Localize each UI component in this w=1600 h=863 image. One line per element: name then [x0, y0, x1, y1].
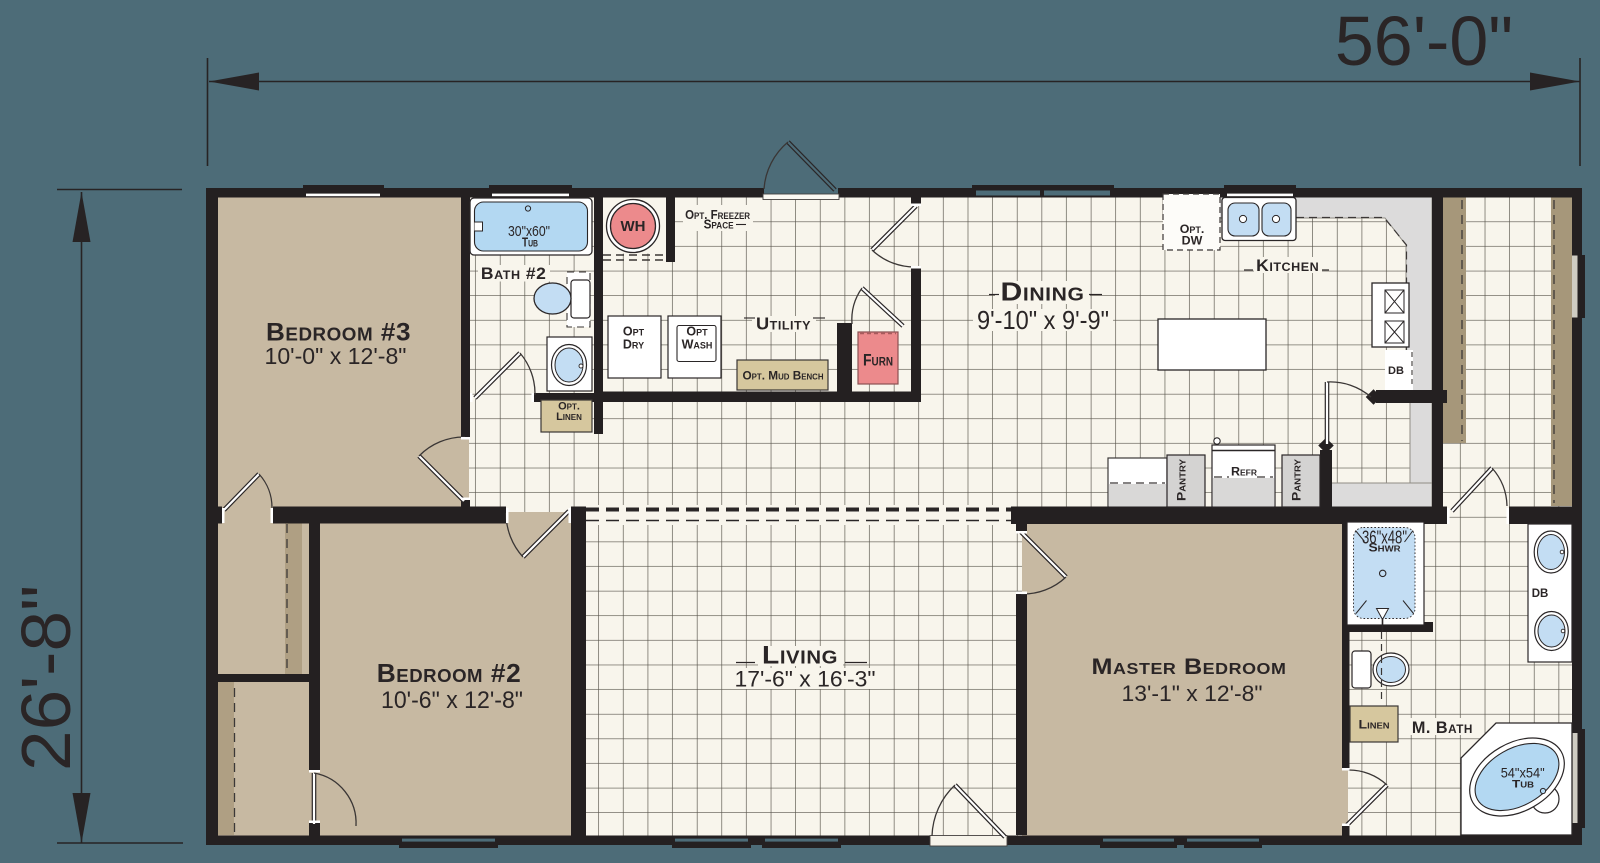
svg-text:10'-6" x 12'-8": 10'-6" x 12'-8" — [381, 687, 523, 714]
svg-text:Bath #2: Bath #2 — [481, 264, 547, 283]
svg-text:56'-0": 56'-0" — [1335, 2, 1513, 80]
svg-text:M. Bath: M. Bath — [1412, 718, 1473, 737]
svg-text:9'-10" x 9'-9": 9'-10" x 9'-9" — [977, 307, 1109, 335]
svg-text:Kitchen: Kitchen — [1256, 256, 1319, 275]
svg-text:Dry: Dry — [623, 338, 644, 352]
svg-text:17'-6" x 16'-3": 17'-6" x 16'-3" — [735, 667, 876, 692]
svg-text:Opt. Mud Bench: Opt. Mud Bench — [743, 369, 824, 383]
svg-text:DB: DB — [1532, 588, 1549, 600]
svg-text:10'-0" x 12'-8": 10'-0" x 12'-8" — [265, 343, 407, 369]
svg-text:Wash: Wash — [682, 338, 713, 352]
svg-text:Linen: Linen — [1359, 718, 1390, 732]
svg-text:WH: WH — [621, 218, 646, 235]
svg-text:Living: Living — [762, 642, 838, 670]
svg-text:Refr: Refr — [1231, 465, 1257, 479]
svg-text:Tub: Tub — [522, 235, 538, 250]
svg-text:Pantry: Pantry — [1292, 458, 1304, 501]
svg-text:Space: Space — [704, 216, 734, 231]
svg-text:Opt: Opt — [623, 325, 645, 339]
svg-text:Tub: Tub — [1512, 779, 1534, 791]
svg-text:Master Bedroom: Master Bedroom — [1092, 654, 1287, 679]
svg-text:13'-1" x 12'-8": 13'-1" x 12'-8" — [1122, 681, 1263, 706]
svg-text:Bedroom #2: Bedroom #2 — [377, 660, 522, 688]
svg-text:DB: DB — [1388, 365, 1404, 377]
svg-text:26'-8": 26'-8" — [7, 585, 85, 771]
svg-text:Opt: Opt — [686, 325, 708, 339]
svg-text:Shwr: Shwr — [1369, 543, 1401, 555]
svg-text:DW: DW — [1182, 234, 1203, 248]
svg-text:Dining: Dining — [1001, 279, 1085, 307]
svg-text:Linen: Linen — [556, 411, 582, 423]
svg-text:Furn: Furn — [863, 351, 893, 370]
svg-text:Utility: Utility — [756, 314, 811, 334]
svg-text:Pantry: Pantry — [1177, 458, 1189, 501]
